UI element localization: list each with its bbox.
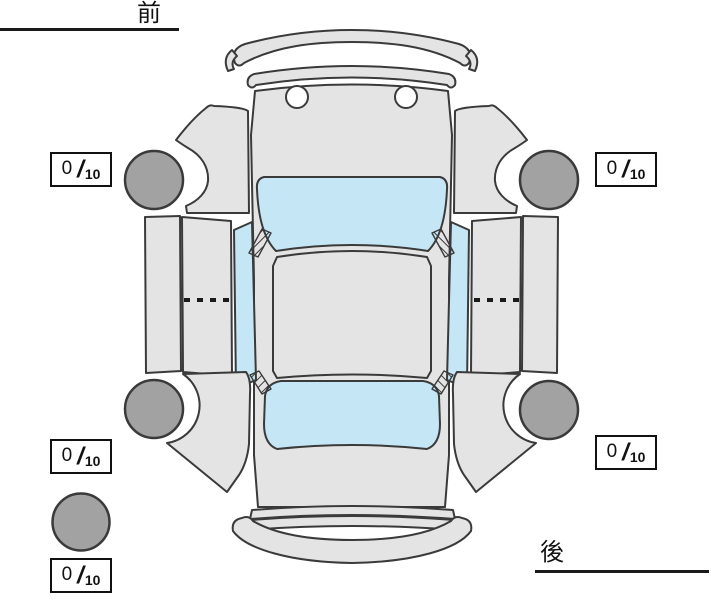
car-top-view (0, 0, 711, 600)
tire-front-left (125, 151, 183, 209)
rocker-panel (145, 216, 181, 373)
tread-slash: / (622, 158, 629, 182)
rear-trim-strip-lower (248, 516, 457, 530)
rear-fender (453, 372, 536, 492)
front-fender (176, 105, 249, 213)
tread-max: 10 (85, 573, 101, 587)
tread-value: 0 (62, 159, 73, 178)
tread-value: 0 (607, 159, 618, 178)
front-label: 前 (137, 2, 161, 26)
headlight-left-icon (286, 86, 308, 108)
tread-box-rear-right: 0/10 (595, 435, 657, 470)
vehicle-condition-diagram: 0/10 0/10 0/10 0/10 0/10 前 後 (0, 0, 711, 600)
rear-label: 後 (540, 541, 564, 565)
tread-slash: / (77, 445, 84, 469)
rear-line (535, 570, 709, 573)
tread-box-front-right: 0/10 (595, 152, 657, 187)
front-line (0, 28, 179, 31)
rocker-panel (522, 216, 558, 373)
tire-front-right (520, 151, 578, 209)
tread-max: 10 (85, 167, 101, 181)
rear-fender (167, 372, 250, 492)
tread-max: 10 (85, 454, 101, 468)
door-panel (182, 217, 232, 376)
windshield (257, 177, 447, 251)
tread-slash: / (77, 564, 84, 588)
tire-spare (53, 494, 110, 551)
tread-slash: / (77, 158, 84, 182)
tread-box-spare: 0/10 (50, 558, 112, 593)
tread-slash: / (622, 441, 629, 465)
tread-value: 0 (607, 442, 618, 461)
tread-box-front-left: 0/10 (50, 152, 112, 187)
tire-rear-right (520, 381, 578, 439)
headlight-right-icon (395, 86, 417, 108)
tread-box-rear-left: 0/10 (50, 439, 112, 474)
front-fender (454, 105, 527, 213)
car-body-center (226, 30, 478, 563)
tread-max: 10 (630, 450, 646, 464)
door-panel (471, 217, 521, 376)
roof-panel (273, 251, 431, 378)
tire-rear-left (125, 380, 183, 438)
tread-max: 10 (630, 167, 646, 181)
front-bumper (234, 30, 471, 66)
tread-value: 0 (62, 565, 73, 584)
tread-value: 0 (62, 446, 73, 465)
rear-window (264, 381, 440, 449)
